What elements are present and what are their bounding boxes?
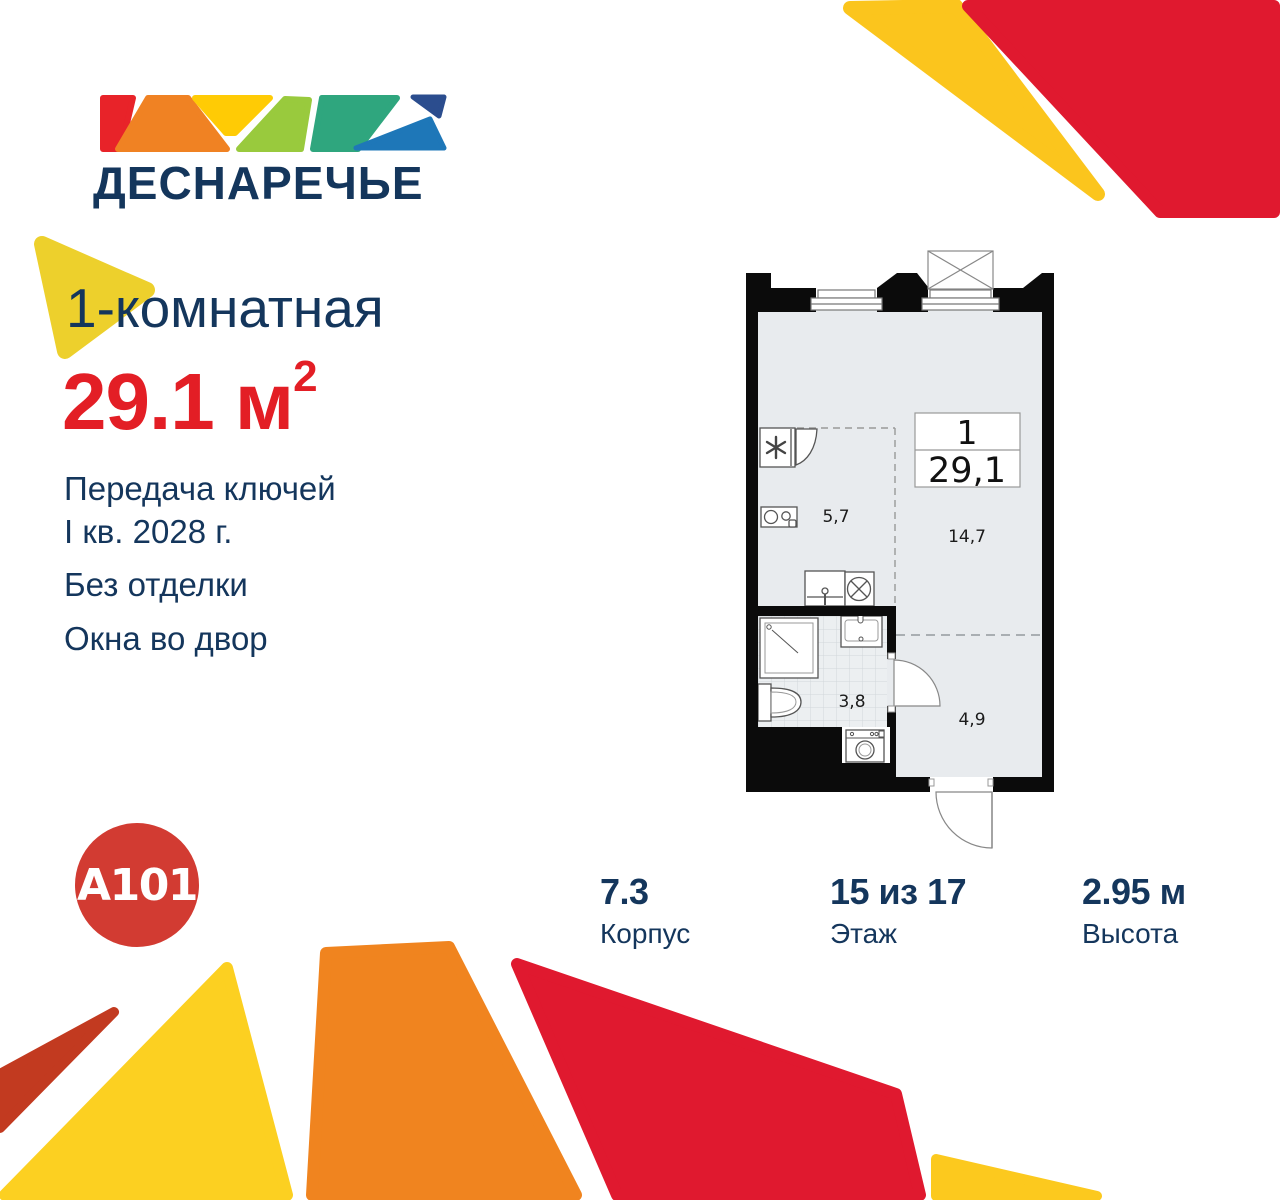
stove-icon xyxy=(761,507,797,527)
feature-list: Передача ключей I кв. 2028 г. Без отделк… xyxy=(64,470,336,658)
stat-height-value: 2.95 м xyxy=(1082,871,1186,913)
area-superscript: 2 xyxy=(293,352,317,401)
bathroom-area-label: 3,8 xyxy=(838,692,865,712)
balcony-box-icon xyxy=(928,251,993,289)
deco-bottom xyxy=(0,940,1280,1200)
windows-view-line: Окна во двор xyxy=(64,620,336,658)
entrance-jamb-left xyxy=(929,779,934,786)
a101-text: A101 xyxy=(77,860,197,911)
kitchen-cabinet-icon xyxy=(805,571,845,606)
window-left xyxy=(811,290,882,310)
handover-line1: Передача ключей xyxy=(64,470,336,508)
a101-logo: A101 xyxy=(72,820,202,950)
window-right xyxy=(922,290,999,310)
deco-yellow-small-wedge xyxy=(936,1159,1097,1196)
bathroom-door-jamb-bottom xyxy=(888,706,895,712)
plan-info-box: 1 29,1 xyxy=(915,413,1020,491)
area-value: 29.1 м2 xyxy=(62,352,318,448)
plan-total-area: 29,1 xyxy=(928,451,1006,491)
rooms-title: 1-комнатная xyxy=(66,276,384,340)
stat-floor-value: 15 из 17 xyxy=(830,871,966,913)
plan-rooms-count: 1 xyxy=(957,413,978,452)
brand-wordmark: ДЕСНАРЕЧЬЕ xyxy=(93,156,424,210)
logo-band xyxy=(95,88,455,160)
stat-height: 2.95 м Высота xyxy=(1082,871,1186,950)
bathroom-door-jamb-top xyxy=(888,653,895,659)
apartment-flyer: { "brand": { "wordmark": "ДЕСНАРЕЧЬЕ", "… xyxy=(0,0,1280,1200)
deco-red-big-shape xyxy=(517,964,920,1195)
shower-icon xyxy=(760,618,818,678)
kitchen-area-label: 5,7 xyxy=(822,507,849,527)
entrance-door-arc xyxy=(936,792,992,848)
stat-building-value: 7.3 xyxy=(600,871,690,913)
entrance-jamb-right xyxy=(988,779,993,786)
handover-line2: I кв. 2028 г. xyxy=(64,513,336,551)
deco-top-right xyxy=(820,0,1280,230)
area-number: 29.1 м xyxy=(62,357,293,446)
kitchen-sink-icon xyxy=(845,572,874,606)
stat-floor: 15 из 17 Этаж xyxy=(830,871,966,950)
stat-building: 7.3 Корпус xyxy=(600,871,690,950)
living-area-label: 14,7 xyxy=(948,527,986,547)
washing-machine-icon xyxy=(846,730,884,762)
floor-plan: 1 29,1 5,7 14,7 3,8 4,9 xyxy=(740,245,1060,855)
hallway-area-label: 4,9 xyxy=(958,710,985,730)
band-darkblue-shape xyxy=(413,97,444,116)
finish-line: Без отделки xyxy=(64,566,336,604)
